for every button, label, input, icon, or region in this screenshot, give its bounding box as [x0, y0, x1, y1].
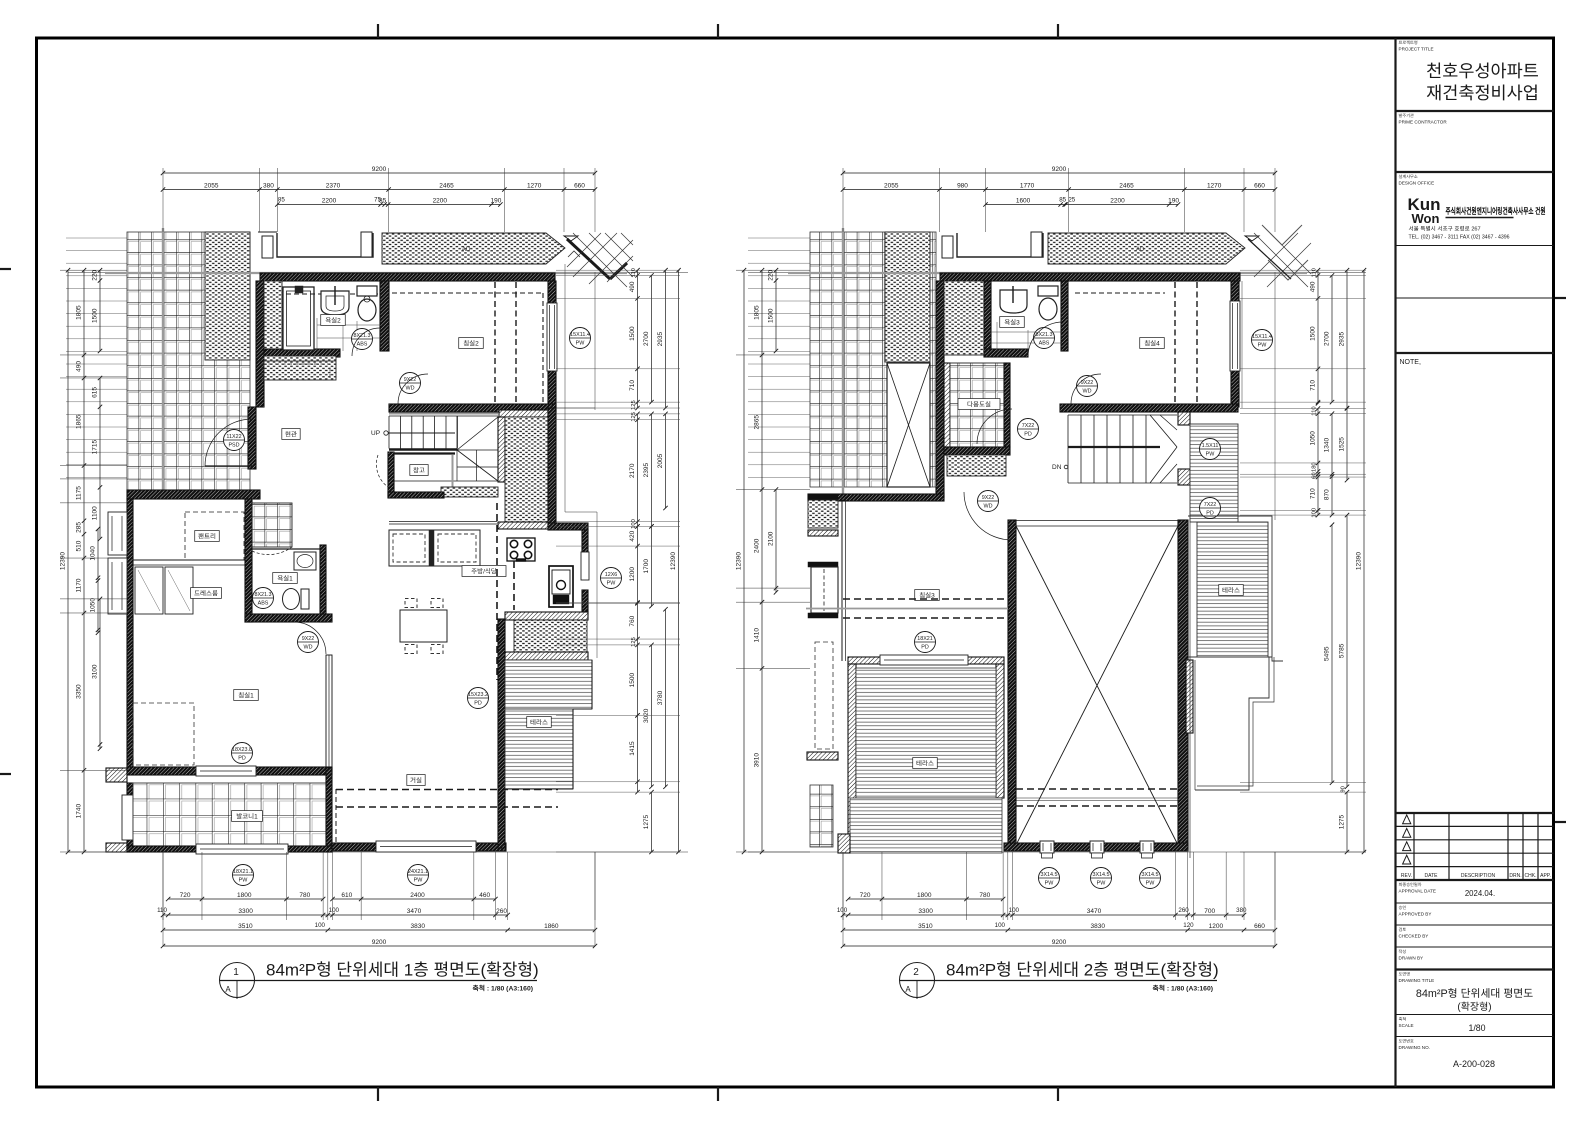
svg-text:APPROVAL DATE: APPROVAL DATE — [1399, 889, 1436, 894]
svg-text:190: 190 — [490, 198, 501, 205]
svg-text:85: 85 — [1059, 197, 1066, 204]
svg-text:1860: 1860 — [544, 923, 559, 930]
svg-text:팬트리: 팬트리 — [198, 532, 216, 540]
svg-text:WD: WD — [406, 386, 415, 392]
svg-text:84m²P형 단위세대 2층 평면도(확장형): 84m²P형 단위세대 2층 평면도(확장형) — [946, 961, 1219, 980]
svg-text:720: 720 — [860, 892, 871, 899]
svg-text:1040: 1040 — [90, 546, 97, 561]
svg-text:1500: 1500 — [768, 308, 775, 323]
svg-text:3830: 3830 — [1091, 923, 1106, 930]
svg-text:1050: 1050 — [90, 598, 97, 613]
svg-text:2935: 2935 — [1339, 331, 1346, 346]
svg-text:PD: PD — [921, 645, 929, 651]
svg-text:220: 220 — [768, 270, 775, 281]
svg-text:660: 660 — [1254, 923, 1265, 930]
svg-text:1100: 1100 — [92, 506, 99, 520]
svg-text:60: 60 — [1312, 472, 1318, 478]
svg-text:1700: 1700 — [643, 559, 650, 574]
svg-text:11X22: 11X22 — [226, 434, 241, 440]
svg-text:1: 1 — [233, 967, 239, 978]
svg-text:2400: 2400 — [410, 892, 425, 899]
svg-text:주식회사건원엔지니어링건축사사무소 건원: 주식회사건원엔지니어링건축사사무소 건원 — [1446, 206, 1546, 216]
svg-text:84m²P형 단위세대 평면도: 84m²P형 단위세대 평면도 — [1416, 987, 1533, 1000]
svg-text:285: 285 — [76, 522, 83, 533]
svg-text:84m²P형 단위세대 1층 평면도(확장형): 84m²P형 단위세대 1층 평면도(확장형) — [266, 961, 539, 980]
svg-text:CHECKED BY: CHECKED BY — [1399, 934, 1429, 939]
svg-text:AD: AD — [462, 247, 471, 253]
svg-text:1800: 1800 — [917, 892, 932, 899]
svg-text:490: 490 — [76, 361, 83, 372]
svg-text:3020: 3020 — [643, 708, 650, 723]
svg-text:2: 2 — [913, 967, 919, 978]
svg-text:5785: 5785 — [1339, 643, 1346, 658]
svg-text:980: 980 — [957, 183, 968, 190]
svg-text:2200: 2200 — [433, 198, 448, 205]
svg-text:1805: 1805 — [754, 305, 761, 320]
svg-text:700: 700 — [1204, 908, 1215, 915]
svg-text:재건축정비사업: 재건축정비사업 — [1426, 83, 1539, 103]
svg-text:125: 125 — [631, 412, 637, 422]
svg-text:서울 특별시 서초구 효령로 267: 서울 특별시 서초구 효령로 267 — [1409, 226, 1481, 233]
svg-text:100: 100 — [315, 922, 326, 929]
svg-text:승인: 승인 — [1399, 905, 1407, 910]
svg-text:2865: 2865 — [754, 415, 761, 430]
svg-text:2055: 2055 — [884, 183, 899, 190]
svg-text:거실: 거실 — [410, 776, 422, 784]
svg-text:PRIME CONTRACTOR: PRIME CONTRACTOR — [1399, 120, 1448, 125]
svg-text:2465: 2465 — [1119, 183, 1134, 190]
svg-text:2395: 2395 — [643, 463, 650, 478]
svg-text:PD: PD — [238, 756, 246, 762]
svg-text:UP: UP — [371, 430, 380, 437]
svg-text:1050: 1050 — [1310, 431, 1317, 446]
svg-text:490: 490 — [1310, 281, 1317, 292]
svg-text:APP.: APP. — [1540, 873, 1551, 879]
svg-text:NOTE,: NOTE, — [1400, 359, 1421, 366]
svg-text:1500: 1500 — [92, 308, 99, 323]
svg-text:2200: 2200 — [322, 198, 337, 205]
svg-text:9X22: 9X22 — [302, 636, 315, 642]
svg-text:1275: 1275 — [1339, 814, 1346, 829]
svg-text:9200: 9200 — [1052, 939, 1067, 946]
svg-text:75: 75 — [374, 197, 381, 204]
svg-text:1275: 1275 — [643, 814, 650, 829]
svg-text:2100: 2100 — [768, 531, 775, 546]
svg-text:WD: WD — [304, 645, 313, 651]
svg-text:PD: PD — [474, 701, 482, 707]
svg-text:ABS: ABS — [357, 342, 368, 348]
svg-text:3470: 3470 — [1087, 908, 1102, 915]
svg-text:9200: 9200 — [372, 939, 387, 946]
svg-text:110: 110 — [1312, 268, 1318, 277]
svg-text:710: 710 — [1310, 488, 1317, 499]
svg-text:100: 100 — [1312, 508, 1318, 518]
svg-text:1410: 1410 — [754, 628, 761, 643]
svg-text:8X21.3: 8X21.3 — [353, 333, 370, 339]
svg-text:WD: WD — [1083, 389, 1092, 395]
svg-text:3910: 3910 — [754, 753, 761, 768]
svg-text:DRAWING NO.: DRAWING NO. — [1399, 1045, 1430, 1050]
svg-text:180: 180 — [1312, 462, 1318, 472]
svg-text:2200: 2200 — [1110, 198, 1125, 205]
svg-text:테라스: 테라스 — [530, 718, 548, 726]
svg-text:DRAWN BY: DRAWN BY — [1399, 956, 1424, 961]
svg-text:2465: 2465 — [439, 183, 454, 190]
svg-text:침실2: 침실2 — [463, 339, 479, 347]
svg-text:A-200-028: A-200-028 — [1453, 1059, 1495, 1069]
svg-text:260: 260 — [496, 908, 507, 915]
svg-text:프로젝트명: 프로젝트명 — [1399, 40, 1418, 45]
svg-text:5495: 5495 — [1324, 646, 1331, 661]
svg-text:1200: 1200 — [1209, 923, 1224, 930]
svg-text:380: 380 — [1236, 907, 1247, 914]
svg-text:100: 100 — [837, 907, 848, 914]
svg-text:110: 110 — [157, 907, 167, 914]
svg-text:DATE: DATE — [1425, 873, 1439, 879]
svg-text:Won: Won — [1412, 211, 1440, 226]
svg-text:1865: 1865 — [76, 414, 83, 429]
svg-text:2700: 2700 — [643, 331, 650, 346]
svg-text:380: 380 — [263, 183, 274, 190]
svg-text:9200: 9200 — [372, 166, 387, 173]
svg-text:DESIGN OFFICE: DESIGN OFFICE — [1399, 181, 1435, 186]
svg-text:18X21: 18X21 — [917, 636, 933, 642]
svg-text:A: A — [905, 985, 911, 994]
svg-text:PW: PW — [1258, 343, 1268, 349]
svg-text:축척 : 1/80 (A3:160): 축척 : 1/80 (A3:160) — [1153, 985, 1213, 993]
svg-text:PROJECT TITLE: PROJECT TITLE — [1399, 47, 1434, 52]
svg-text:12390: 12390 — [670, 552, 677, 570]
svg-text:DRN.: DRN. — [1509, 873, 1521, 879]
svg-text:460: 460 — [479, 892, 490, 899]
svg-text:검토: 검토 — [1399, 927, 1407, 932]
svg-text:1415: 1415 — [629, 741, 636, 756]
svg-text:3470: 3470 — [407, 908, 422, 915]
svg-text:침실1: 침실1 — [238, 691, 254, 699]
svg-text:1270: 1270 — [1207, 183, 1222, 190]
svg-text:TEL. (02) 3467 - 3111: TEL. (02) 3467 - 3111 FAX (02) 3467 - 43… — [1409, 235, 1510, 241]
svg-text:660: 660 — [574, 183, 585, 190]
svg-text:3100: 3100 — [92, 664, 99, 679]
svg-text:ABS: ABS — [1039, 341, 1050, 347]
svg-text:12X6: 12X6 — [605, 572, 618, 578]
svg-text:610: 610 — [341, 892, 352, 899]
svg-text:욕실1: 욕실1 — [277, 574, 293, 582]
svg-text:1170: 1170 — [76, 578, 83, 592]
svg-text:3510: 3510 — [918, 923, 933, 930]
svg-text:3300: 3300 — [238, 908, 253, 915]
svg-text:현관: 현관 — [285, 430, 297, 438]
svg-text:PW: PW — [1206, 452, 1216, 458]
svg-text:780: 780 — [299, 892, 310, 899]
svg-text:7X22: 7X22 — [1204, 502, 1217, 508]
svg-text:CHK.: CHK. — [1525, 873, 1537, 879]
svg-text:PW: PW — [1045, 881, 1055, 887]
svg-text:12390: 12390 — [736, 552, 743, 570]
svg-text:24X21.1: 24X21.1 — [408, 869, 428, 875]
svg-text:설계사무소: 설계사무소 — [1399, 174, 1418, 179]
svg-text:2370: 2370 — [326, 183, 341, 190]
svg-text:110: 110 — [631, 268, 637, 277]
svg-text:120: 120 — [1183, 922, 1194, 929]
svg-text:1/80: 1/80 — [1468, 1023, 1485, 1033]
svg-text:최종승인일자: 최종승인일자 — [1399, 882, 1422, 887]
svg-text:욕실3: 욕실3 — [1004, 318, 1020, 326]
svg-text:축척 : 1/80 (A3:160): 축척 : 1/80 (A3:160) — [473, 985, 533, 993]
svg-text:3510: 3510 — [238, 923, 253, 930]
svg-text:710: 710 — [1310, 380, 1317, 391]
svg-text:(확장형): (확장형) — [1457, 1001, 1491, 1013]
svg-text:100: 100 — [1009, 907, 1020, 914]
svg-text:침실3: 침실3 — [919, 591, 935, 599]
svg-text:9200: 9200 — [1052, 166, 1067, 173]
svg-text:3300: 3300 — [918, 908, 933, 915]
svg-text:1270: 1270 — [527, 183, 542, 190]
svg-text:1770: 1770 — [1020, 183, 1035, 190]
svg-text:2170: 2170 — [629, 463, 636, 478]
svg-text:테라스: 테라스 — [916, 759, 934, 767]
svg-text:9X22: 9X22 — [982, 495, 995, 501]
svg-text:3830: 3830 — [411, 923, 426, 930]
svg-text:PW: PW — [607, 581, 617, 587]
svg-text:2055: 2055 — [204, 183, 219, 190]
svg-text:125: 125 — [631, 400, 637, 410]
svg-text:3X14.5: 3X14.5 — [1092, 872, 1109, 878]
svg-text:3X14.5: 3X14.5 — [1040, 872, 1057, 878]
svg-text:DRAWING TITLE: DRAWING TITLE — [1399, 978, 1435, 983]
svg-text:1800: 1800 — [237, 892, 252, 899]
svg-text:창고: 창고 — [413, 466, 425, 474]
svg-text:660: 660 — [1254, 183, 1265, 190]
svg-text:APPROVED BY: APPROVED BY — [1399, 912, 1432, 917]
svg-text:15X11.4: 15X11.4 — [570, 332, 590, 338]
svg-text:15X23.2: 15X23.2 — [468, 692, 488, 698]
svg-text:PW: PW — [414, 878, 424, 884]
svg-text:1340: 1340 — [1324, 438, 1331, 453]
svg-text:천호우성아파트: 천호우성아파트 — [1426, 61, 1539, 81]
svg-text:720: 720 — [180, 892, 191, 899]
svg-text:25: 25 — [1068, 197, 1075, 204]
svg-text:3780: 3780 — [657, 690, 664, 705]
svg-text:PW: PW — [576, 341, 586, 347]
svg-text:AD: AD — [1136, 247, 1145, 253]
svg-text:침실4: 침실4 — [1144, 339, 1160, 347]
svg-text:18X21.1: 18X21.1 — [233, 869, 253, 875]
svg-text:ABS: ABS — [258, 601, 269, 607]
svg-text:12390: 12390 — [1356, 552, 1363, 570]
svg-text:1175: 1175 — [76, 486, 83, 500]
svg-text:420: 420 — [629, 530, 636, 541]
svg-text:도면명: 도면명 — [1399, 972, 1411, 977]
svg-text:PW: PW — [1097, 881, 1107, 887]
svg-text:760: 760 — [629, 615, 636, 626]
svg-text:3X14.5: 3X14.5 — [1141, 872, 1158, 878]
svg-text:PW: PW — [1146, 881, 1156, 887]
svg-text:SCALE: SCALE — [1399, 1023, 1414, 1028]
svg-text:15X11.4: 15X11.4 — [1252, 334, 1272, 340]
svg-text:도면번호: 도면번호 — [1399, 1039, 1415, 1044]
svg-text:100: 100 — [995, 922, 1006, 929]
svg-text:1.5X11: 1.5X11 — [1202, 443, 1219, 449]
svg-text:다용도실: 다용도실 — [967, 400, 991, 408]
svg-text:욕실2: 욕실2 — [325, 316, 341, 324]
svg-text:615: 615 — [92, 387, 99, 398]
svg-text:A: A — [225, 985, 231, 994]
svg-text:DESCRIPTION: DESCRIPTION — [1461, 873, 1496, 879]
svg-text:8X21.3: 8X21.3 — [254, 592, 271, 598]
svg-text:1805: 1805 — [76, 305, 83, 320]
svg-text:3350: 3350 — [76, 684, 83, 699]
svg-text:REV.: REV. — [1401, 873, 1412, 879]
svg-text:490: 490 — [629, 281, 636, 292]
svg-text:DN: DN — [1052, 464, 1062, 471]
svg-text:7X22: 7X22 — [1022, 423, 1035, 429]
svg-text:1500: 1500 — [629, 326, 636, 341]
svg-text:1500: 1500 — [629, 673, 636, 688]
svg-text:발코니1: 발코니1 — [236, 812, 258, 820]
svg-text:1715: 1715 — [92, 439, 99, 454]
svg-text:510: 510 — [76, 540, 83, 551]
svg-text:PW: PW — [239, 878, 249, 884]
svg-text:1500: 1500 — [1310, 326, 1317, 341]
svg-text:발주기관: 발주기관 — [1399, 113, 1415, 118]
svg-text:1600: 1600 — [1016, 198, 1031, 205]
svg-text:1740: 1740 — [76, 804, 83, 819]
svg-text:PD: PD — [1024, 432, 1032, 438]
svg-text:WD: WD — [984, 504, 993, 510]
svg-text:축척: 축척 — [1399, 1017, 1407, 1022]
svg-text:18X23.8: 18X23.8 — [232, 747, 252, 753]
svg-text:드레스룸: 드레스룸 — [194, 589, 218, 597]
svg-text:주방/식당: 주방/식당 — [471, 567, 497, 575]
svg-text:110: 110 — [1312, 406, 1318, 415]
svg-text:100: 100 — [329, 907, 340, 914]
svg-text:PSD: PSD — [228, 443, 239, 449]
svg-text:2935: 2935 — [657, 331, 664, 346]
svg-text:2400: 2400 — [754, 538, 761, 553]
svg-text:85: 85 — [278, 197, 285, 204]
svg-text:1525: 1525 — [1339, 437, 1346, 452]
svg-text:125: 125 — [631, 637, 637, 647]
svg-text:2024.04.: 2024.04. — [1465, 889, 1495, 898]
svg-text:2700: 2700 — [1324, 331, 1331, 346]
svg-text:2005: 2005 — [657, 453, 664, 468]
svg-text:1200: 1200 — [629, 567, 636, 582]
svg-text:710: 710 — [629, 380, 636, 391]
svg-text:작성: 작성 — [1399, 949, 1407, 954]
svg-text:220: 220 — [92, 270, 99, 281]
svg-text:780: 780 — [979, 892, 990, 899]
svg-text:90: 90 — [1341, 786, 1347, 792]
svg-text:190: 190 — [1168, 198, 1179, 205]
svg-text:테라스: 테라스 — [1222, 586, 1240, 594]
svg-text:870: 870 — [1324, 489, 1331, 500]
svg-text:12390: 12390 — [60, 552, 67, 570]
